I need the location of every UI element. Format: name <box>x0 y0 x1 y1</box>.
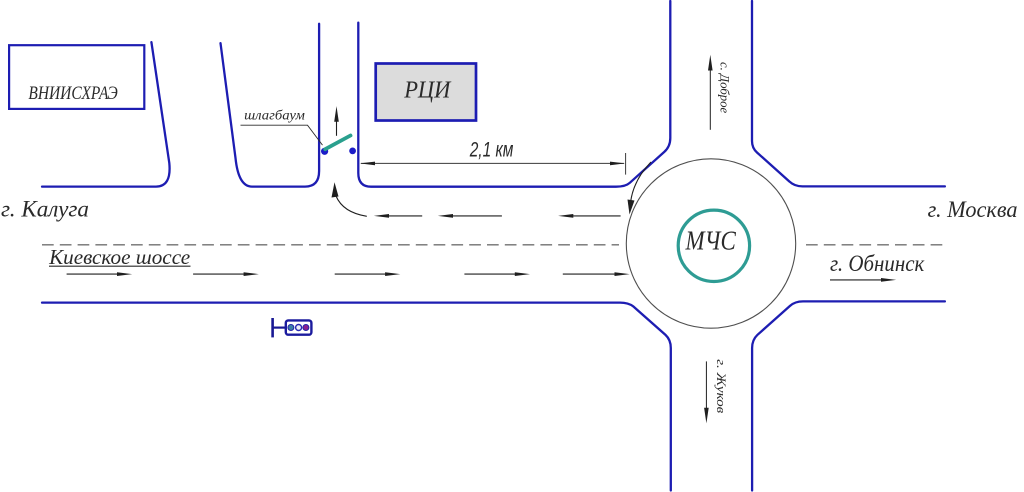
svg-text:с. Доброе: с. Доброе <box>718 62 732 114</box>
svg-text:шлагбаум: шлагбаум <box>244 109 305 124</box>
svg-text:г. Обнинск: г. Обнинск <box>830 251 925 276</box>
svg-text:МЧС: МЧС <box>685 225 737 255</box>
svg-text:2,1 км: 2,1 км <box>469 139 513 162</box>
svg-text:г. Жуков: г. Жуков <box>714 359 728 414</box>
svg-text:ВНИИСХРАЭ: ВНИИСХРАЭ <box>28 83 117 104</box>
svg-text:г. Москва: г. Москва <box>928 197 1018 222</box>
svg-text:г. Калуга: г. Калуга <box>1 197 89 222</box>
svg-text:РЦИ: РЦИ <box>403 78 452 104</box>
svg-text:Киевское шоссе: Киевское шоссе <box>48 245 190 269</box>
